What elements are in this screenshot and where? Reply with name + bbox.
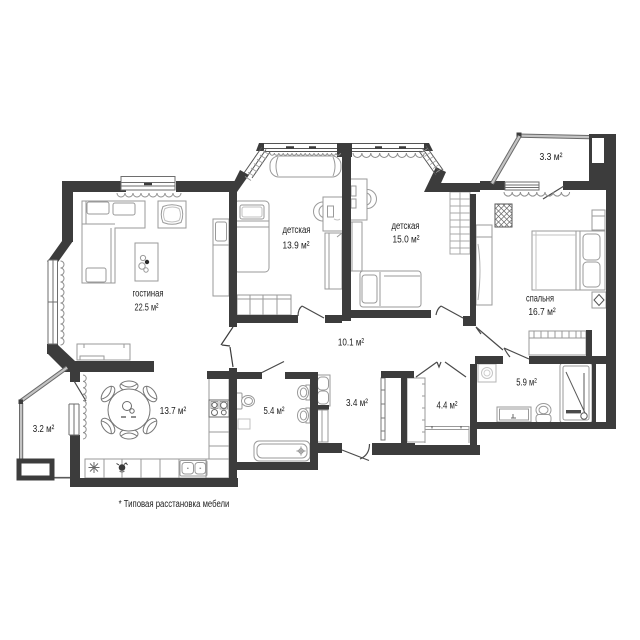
svg-text:3.3 м²: 3.3 м² — [539, 151, 562, 163]
svg-text:спальня: спальня — [526, 292, 554, 304]
svg-text:детская: детская — [392, 220, 420, 231]
svg-text:* Типовая расстановка мебели: * Типовая расстановка мебели — [119, 498, 230, 509]
svg-text:10.1 м²: 10.1 м² — [338, 337, 364, 348]
svg-text:3.2 м²: 3.2 м² — [33, 423, 55, 434]
svg-text:5.4 м²: 5.4 м² — [263, 405, 284, 416]
svg-text:13.7 м²: 13.7 м² — [160, 404, 186, 416]
svg-text:15.0 м²: 15.0 м² — [393, 234, 420, 246]
svg-text:22.5 м²: 22.5 м² — [135, 301, 159, 313]
svg-text:3.4 м²: 3.4 м² — [346, 396, 368, 408]
svg-text:гостиная: гостиная — [133, 287, 164, 298]
svg-text:5.9 м²: 5.9 м² — [516, 376, 536, 387]
svg-text:13.9 м²: 13.9 м² — [283, 240, 310, 252]
svg-text:4.4 м²: 4.4 м² — [436, 399, 457, 410]
svg-text:16.7 м²: 16.7 м² — [528, 306, 555, 318]
svg-text:детская: детская — [283, 224, 311, 235]
